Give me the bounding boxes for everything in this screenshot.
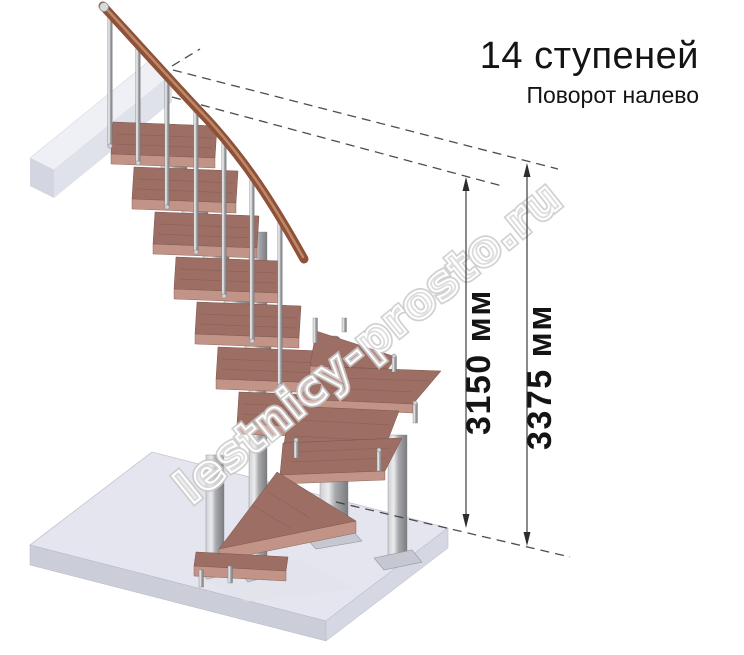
connector-post [377,450,382,471]
dashed-line-top-short [172,49,200,66]
baluster-foot [108,144,112,148]
baluster [194,111,199,252]
arrowhead-up [524,163,531,177]
arrowhead-down [463,514,470,528]
annotation-block: 14 ступеней Поворот налево [480,36,699,108]
connector-post [294,440,299,458]
baluster [108,14,113,146]
baluster-stub [313,318,318,343]
step-count-title: 14 ступеней [480,36,699,76]
handrail-end-cap [100,3,109,12]
tread [153,212,259,258]
baluster [136,47,141,163]
joint-dot [294,438,298,442]
baluster-foot [250,339,254,343]
baluster [165,80,170,207]
arrowhead-down [524,532,531,546]
connector-post [392,356,397,372]
connector-post [413,403,418,423]
tread [111,122,217,168]
baluster [250,179,255,341]
tread-leg [199,570,204,587]
joint-dot [413,401,417,405]
tread-leg [228,566,233,583]
turn-direction-subtitle: Поворот налево [480,82,699,108]
staircase-product-diagram: lestnicy-prosto.ru lestnicy-prosto.ru 31… [0,0,744,655]
joint-dot [377,448,381,452]
tread [195,302,301,348]
baluster [278,221,283,386]
baluster-foot [165,205,169,209]
arrowhead-up [463,177,470,191]
baluster-foot [222,294,226,298]
baluster [222,143,227,296]
dimension-label-3375: 3375 мм [521,304,559,450]
baluster-foot [194,250,198,254]
baluster-foot [136,161,140,165]
tread [174,257,280,303]
dimension-label-3150: 3150 мм [460,289,498,435]
